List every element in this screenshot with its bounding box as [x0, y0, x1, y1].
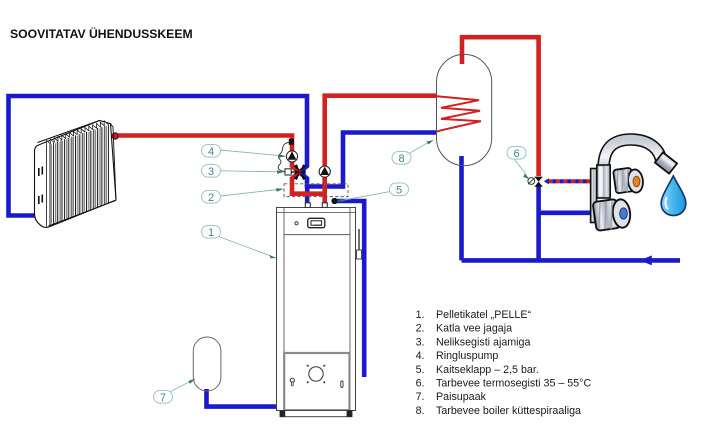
- svg-text:Kaitseklapp – 2,5 bar.: Kaitseklapp – 2,5 bar.: [436, 364, 539, 376]
- svg-text:5.: 5.: [416, 364, 425, 376]
- svg-text:Tarbevee termosegisti 35 – 55°: Tarbevee termosegisti 35 – 55°C: [436, 378, 591, 390]
- svg-text:8.: 8.: [416, 405, 425, 417]
- svg-text:6: 6: [513, 148, 519, 160]
- svg-text:Neliksegisti ajamiga: Neliksegisti ajamiga: [436, 336, 531, 348]
- svg-text:3.: 3.: [416, 336, 425, 348]
- svg-text:Tarbevee boiler küttespiraalig: Tarbevee boiler küttespiraaliga: [436, 405, 581, 417]
- svg-text:Paisupaak: Paisupaak: [436, 391, 487, 403]
- svg-text:5: 5: [396, 184, 402, 196]
- svg-text:3: 3: [208, 166, 214, 178]
- svg-text:2.: 2.: [416, 323, 425, 335]
- svg-text:4.: 4.: [416, 350, 425, 362]
- svg-text:Ringluspump: Ringluspump: [436, 350, 498, 362]
- svg-text:8: 8: [398, 153, 404, 165]
- svg-text:2: 2: [208, 192, 214, 204]
- svg-text:4: 4: [208, 146, 214, 158]
- svg-text:Katla vee jagaja: Katla vee jagaja: [436, 323, 512, 335]
- svg-text:7: 7: [160, 392, 166, 404]
- svg-text:6.: 6.: [416, 378, 425, 390]
- svg-text:1: 1: [208, 227, 214, 239]
- svg-text:SOOVITATAV ÜHENDUSSKEEM: SOOVITATAV ÜHENDUSSKEEM: [10, 26, 193, 41]
- svg-text:1.: 1.: [416, 309, 425, 321]
- svg-text:7.: 7.: [416, 391, 425, 403]
- svg-text:Pelletikatel „PELLE“: Pelletikatel „PELLE“: [436, 309, 531, 321]
